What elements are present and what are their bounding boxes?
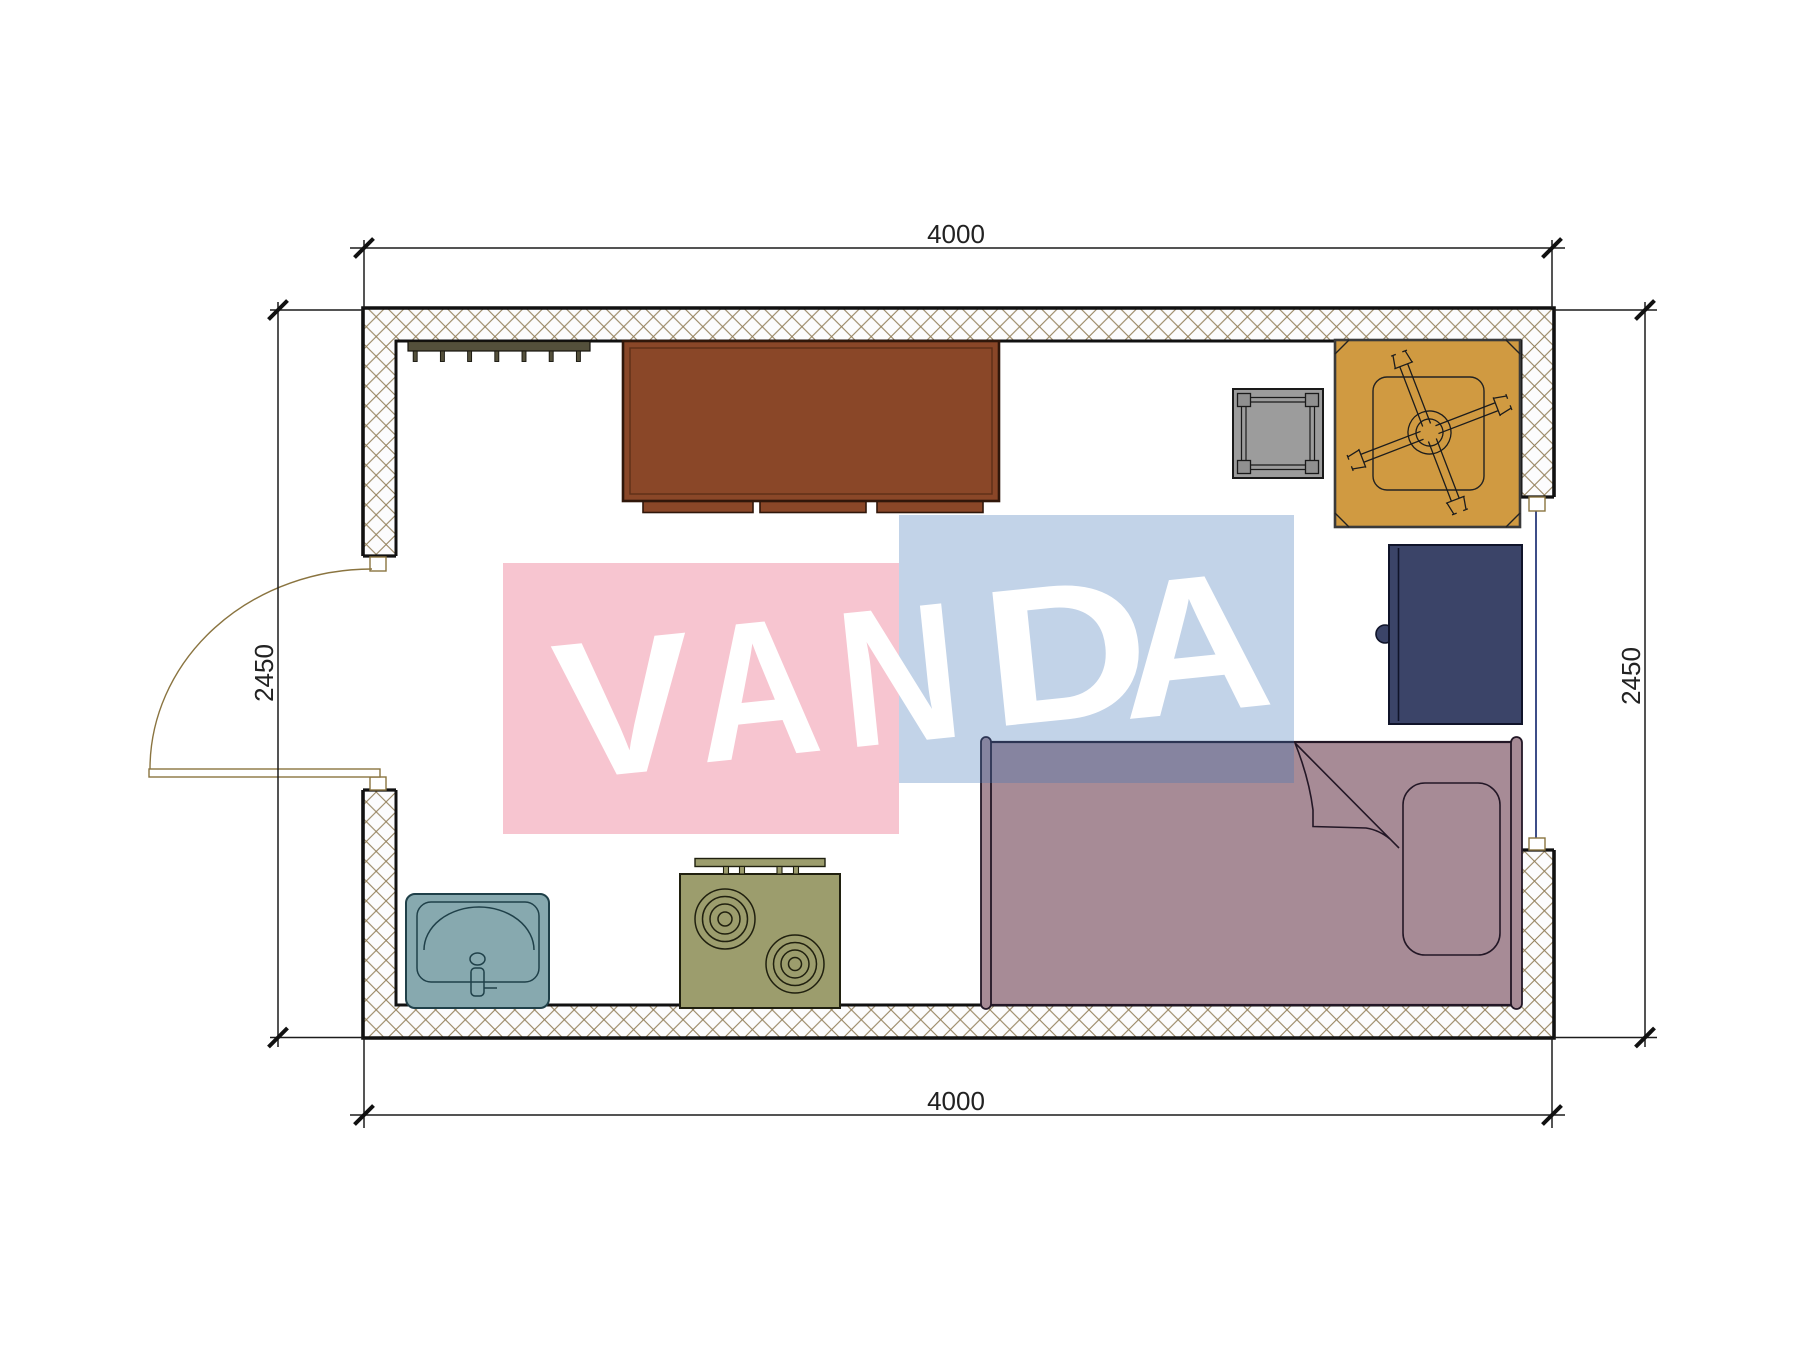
svg-text:A: A [685, 575, 829, 804]
svg-text:A: A [1107, 529, 1281, 761]
svg-text:N: N [828, 561, 970, 789]
svg-text:4000: 4000 [927, 219, 985, 249]
svg-text:V: V [545, 590, 704, 821]
svg-text:2450: 2450 [249, 644, 279, 702]
svg-text:4000: 4000 [927, 1086, 985, 1116]
svg-text:2450: 2450 [1616, 647, 1646, 705]
